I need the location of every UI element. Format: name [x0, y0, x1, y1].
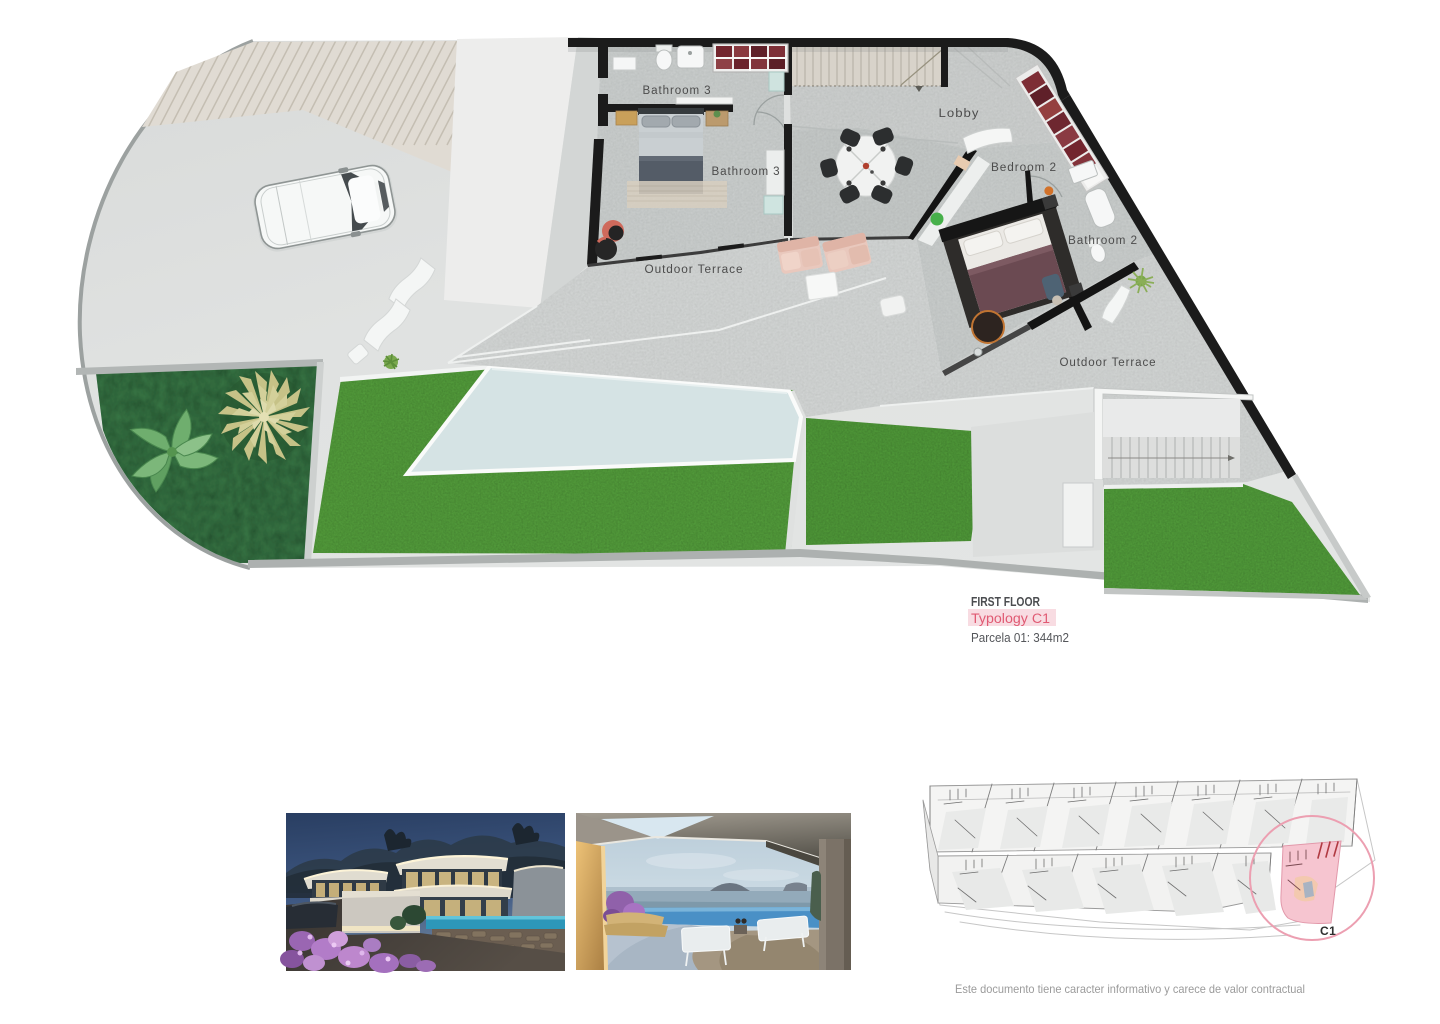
svg-text:Bathroom 2: Bathroom 2: [1068, 235, 1138, 247]
svg-text:Parcela 01: 344m2: Parcela 01: 344m2: [971, 631, 1069, 645]
svg-text:Outdoor Terrace: Outdoor Terrace: [645, 264, 744, 276]
svg-text:Typology C1: Typology C1: [971, 611, 1050, 626]
svg-text:Bathroom 3: Bathroom 3: [643, 85, 712, 97]
svg-text:Lobby: Lobby: [939, 108, 980, 120]
svg-text:Bathroom 3: Bathroom 3: [712, 166, 781, 178]
svg-text:Bedroom 2: Bedroom 2: [991, 162, 1057, 174]
svg-text:C1: C1: [1320, 924, 1336, 938]
svg-text:Este documento tiene caracter: Este documento tiene caracter informativ…: [955, 982, 1305, 996]
svg-text:Outdoor Terrace: Outdoor Terrace: [1060, 357, 1157, 369]
svg-text:FIRST FLOOR: FIRST FLOOR: [971, 594, 1040, 609]
